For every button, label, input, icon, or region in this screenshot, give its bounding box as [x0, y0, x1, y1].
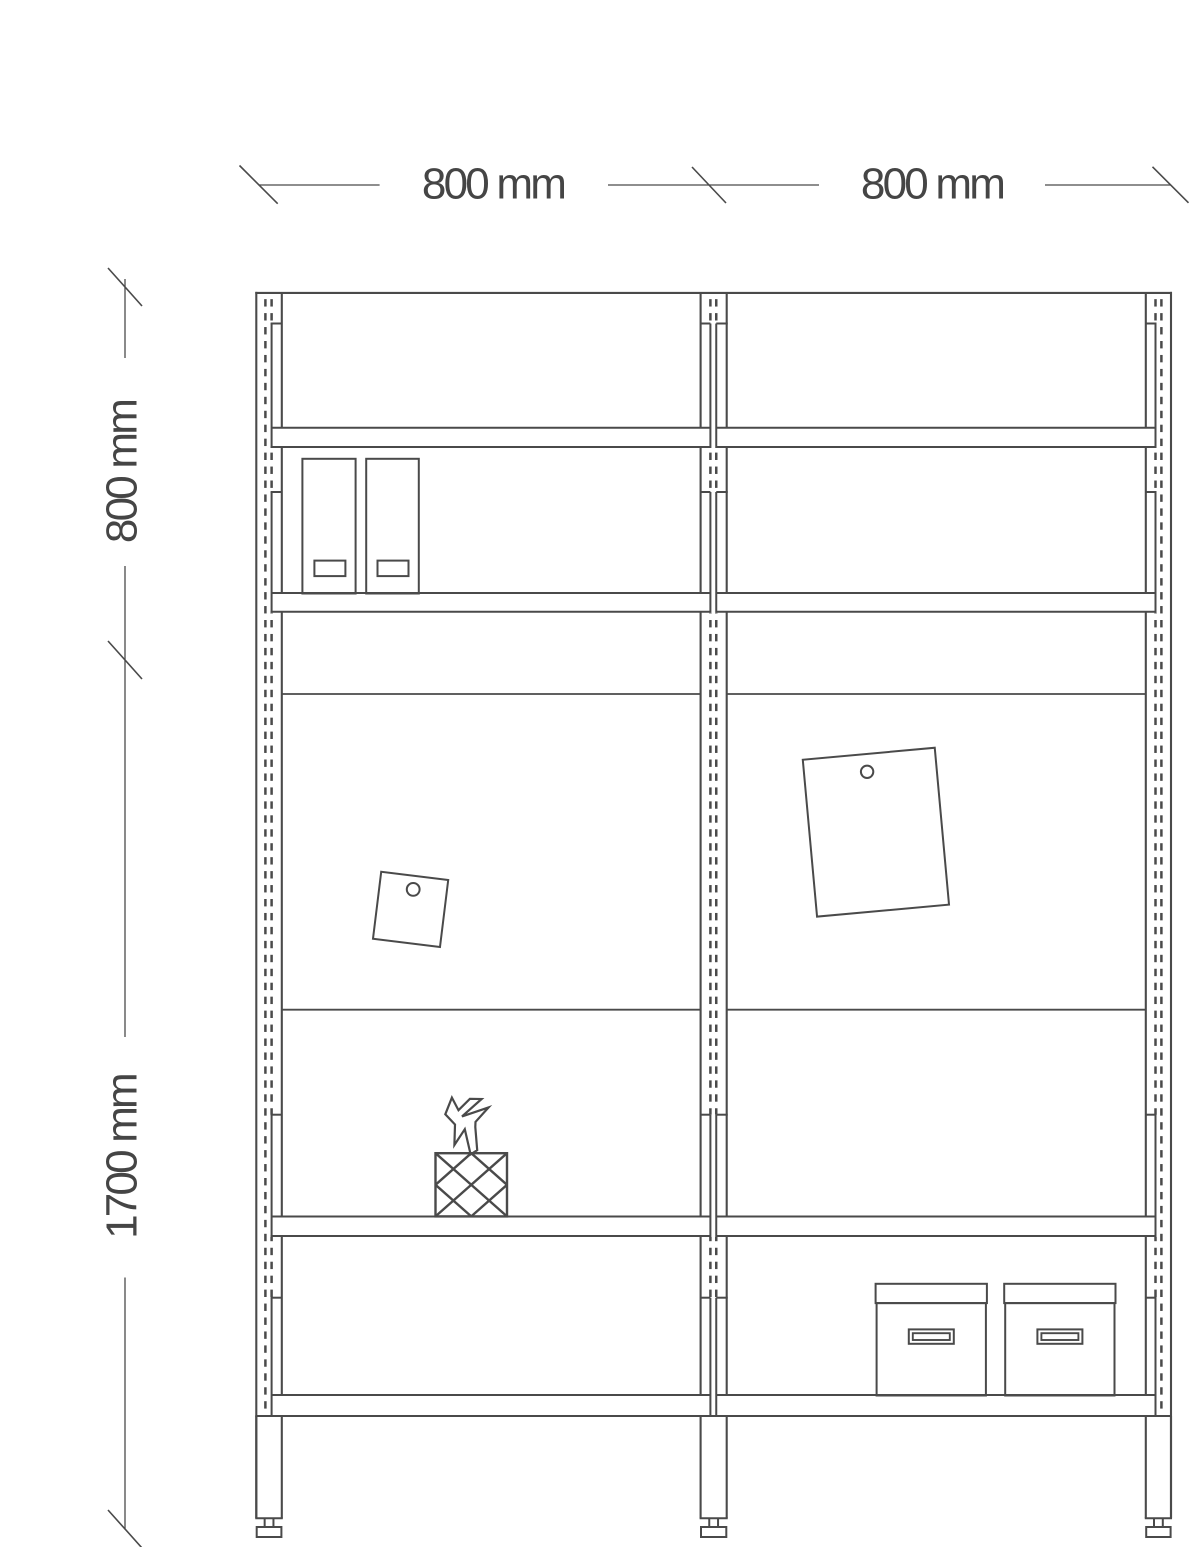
- svg-text:1700 mm: 1700 mm: [98, 1075, 147, 1239]
- svg-text:800 mm: 800 mm: [422, 160, 564, 209]
- svg-text:800 mm: 800 mm: [98, 401, 147, 543]
- svg-text:800 mm: 800 mm: [861, 160, 1003, 209]
